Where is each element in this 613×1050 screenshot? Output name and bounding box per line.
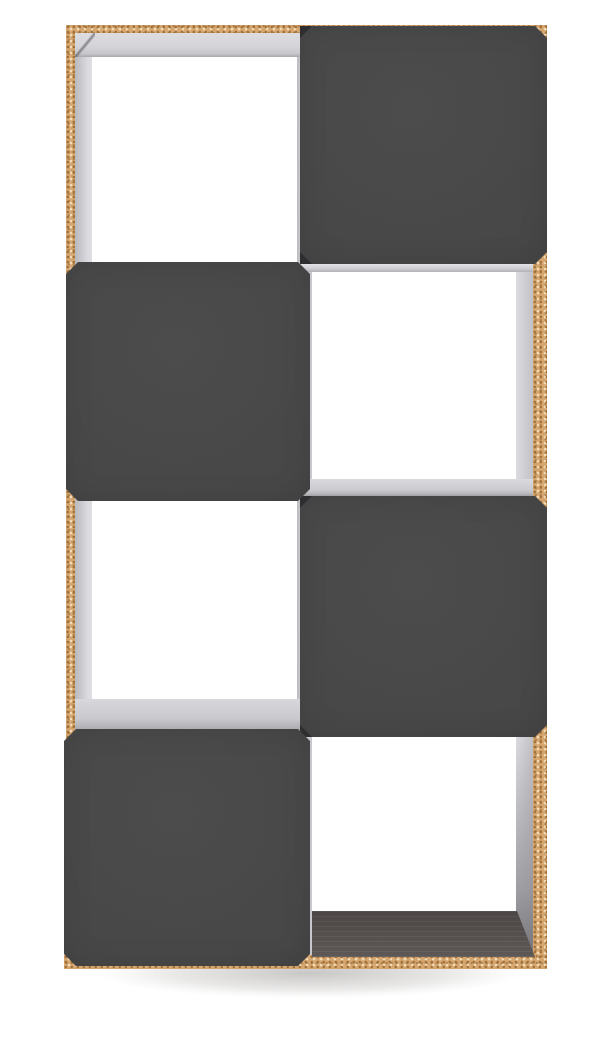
cube-floor-bottom <box>312 911 535 957</box>
top-left-corner-seam <box>75 33 95 57</box>
door-panel-r1c2 <box>300 26 547 264</box>
door-panel-r3c2 <box>300 496 547 737</box>
shelf-underside-row1 <box>297 263 533 272</box>
shelf-top-row2 <box>297 479 533 496</box>
door-panel-r4c1 <box>64 729 310 966</box>
product-photo <box>0 0 613 1050</box>
door-panel-r2c1 <box>66 262 310 501</box>
